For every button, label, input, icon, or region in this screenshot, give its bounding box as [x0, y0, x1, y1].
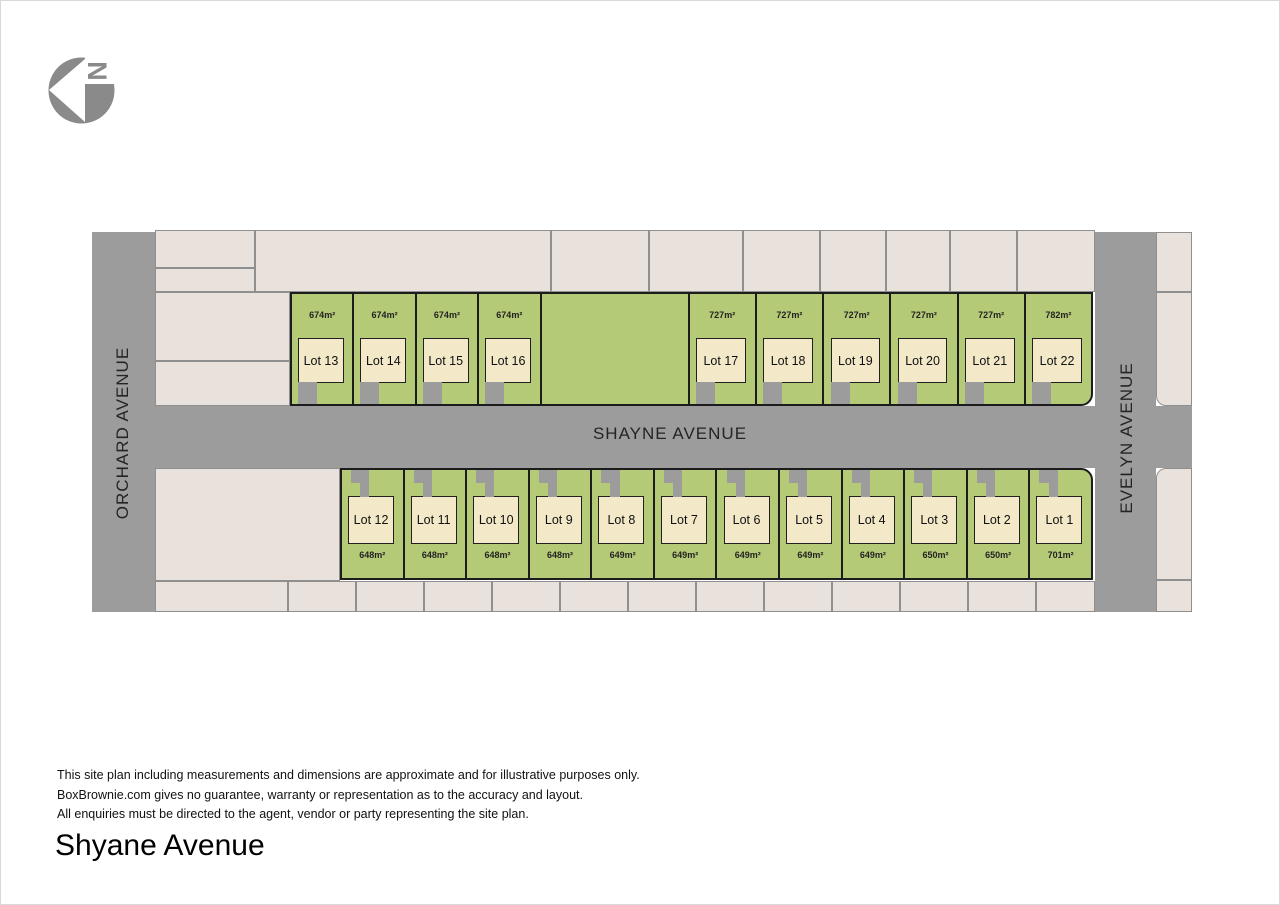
lot-number-label: Lot 17 — [703, 354, 738, 368]
lot-area-label: 727m² — [757, 310, 822, 320]
driveway — [798, 470, 807, 497]
lot-18: 727m²Lot 18 — [757, 294, 824, 404]
driveway — [923, 470, 932, 497]
driveway — [485, 382, 504, 404]
site-plan-canvas: N SHAYNE AVENUE ORCHARD AVENUE EVELYN AV… — [0, 0, 1280, 905]
page-title: Shyane Avenue — [55, 829, 265, 863]
background-parcel — [628, 581, 696, 612]
background-parcel — [950, 230, 1017, 292]
house-footprint: Lot 14 — [360, 338, 406, 383]
background-parcel — [1156, 580, 1192, 612]
driveway — [736, 470, 745, 497]
lot-10: 648m²Lot 10 — [467, 470, 530, 578]
house-footprint: Lot 7 — [661, 496, 707, 544]
lot-area-label: 727m² — [824, 310, 889, 320]
north-letter: N — [82, 61, 112, 81]
house-footprint: Lot 3 — [911, 496, 957, 544]
lot-area-label: 727m² — [690, 310, 755, 320]
driveway — [831, 382, 850, 404]
background-parcel — [1036, 581, 1095, 612]
driveway — [360, 470, 369, 497]
background-parcel — [832, 581, 900, 612]
lot-number-label: Lot 12 — [354, 513, 389, 527]
background-parcel — [155, 268, 255, 292]
house-footprint: Lot 11 — [411, 496, 457, 544]
driveway — [485, 470, 494, 497]
house-footprint: Lot 15 — [423, 338, 469, 383]
lot-6: 649m²Lot 6 — [717, 470, 780, 578]
lot-number-label: Lot 6 — [733, 513, 761, 527]
lot-3: 650m²Lot 3 — [905, 470, 968, 578]
lot-area-label: 648m² — [342, 550, 403, 560]
lot-number-label: Lot 13 — [304, 354, 339, 368]
open-space-area — [542, 294, 690, 404]
lot-22: 782m²Lot 22 — [1026, 294, 1091, 404]
background-parcel — [743, 230, 820, 292]
background-parcel — [492, 581, 560, 612]
background-parcel — [696, 581, 764, 612]
background-parcel — [155, 230, 255, 268]
disclaimer-text: This site plan including measurements an… — [57, 766, 640, 825]
lot-area-label: 649m² — [843, 550, 904, 560]
background-parcel — [649, 230, 743, 292]
driveway — [423, 470, 432, 497]
lot-number-label: Lot 11 — [417, 513, 451, 527]
lot-number-label: Lot 20 — [905, 354, 940, 368]
lot-4: 649m²Lot 4 — [843, 470, 906, 578]
house-footprint: Lot 16 — [485, 338, 531, 383]
lot-area-label: 674m² — [479, 310, 539, 320]
house-footprint: Lot 20 — [898, 338, 948, 383]
lot-1: 701m²Lot 1 — [1030, 470, 1091, 578]
house-footprint: Lot 19 — [831, 338, 881, 383]
lot-area-label: 674m² — [417, 310, 477, 320]
background-parcel — [1017, 230, 1095, 292]
background-parcel — [551, 230, 649, 292]
lot-number-label: Lot 9 — [545, 513, 573, 527]
lot-number-label: Lot 10 — [479, 513, 514, 527]
driveway — [965, 382, 984, 404]
lot-number-label: Lot 14 — [366, 354, 401, 368]
lot-14: 674m²Lot 14 — [354, 294, 416, 404]
driveway — [610, 470, 619, 497]
lot-area-label: 650m² — [905, 550, 966, 560]
lot-5: 649m²Lot 5 — [780, 470, 843, 578]
driveway — [1032, 382, 1051, 404]
lot-number-label: Lot 5 — [795, 513, 823, 527]
driveway — [423, 382, 442, 404]
lot-area-label: 674m² — [292, 310, 352, 320]
driveway — [986, 470, 995, 497]
background-parcel — [356, 581, 424, 612]
north-arrow-logo: N — [46, 56, 118, 126]
driveway — [673, 470, 682, 497]
background-parcel — [424, 581, 492, 612]
lot-12: 648m²Lot 12 — [342, 470, 405, 578]
background-parcel — [155, 361, 290, 406]
lot-7: 649m²Lot 7 — [655, 470, 718, 578]
lot-21: 727m²Lot 21 — [959, 294, 1026, 404]
lot-13: 674m²Lot 13 — [292, 294, 354, 404]
lot-11: 648m²Lot 11 — [405, 470, 468, 578]
house-footprint: Lot 13 — [298, 338, 344, 383]
house-footprint: Lot 5 — [786, 496, 832, 544]
background-parcel — [1156, 292, 1192, 406]
background-parcel — [155, 581, 288, 612]
background-parcel — [155, 468, 340, 581]
lot-9: 648m²Lot 9 — [530, 470, 593, 578]
lot-16: 674m²Lot 16 — [479, 294, 541, 404]
lot-number-label: Lot 22 — [1040, 354, 1075, 368]
driveway — [360, 382, 379, 404]
disclaimer-line: BoxBrownie.com gives no guarantee, warra… — [57, 786, 640, 806]
evelyn-avenue-label: EVELYN AVENUE — [1117, 288, 1137, 588]
lot-8: 649m²Lot 8 — [592, 470, 655, 578]
driveway — [696, 382, 715, 404]
lot-area-label: 649m² — [717, 550, 778, 560]
orchard-avenue-label: ORCHARD AVENUE — [113, 283, 133, 583]
lot-area-label: 727m² — [891, 310, 956, 320]
house-footprint: Lot 22 — [1032, 338, 1082, 383]
lot-number-label: Lot 3 — [920, 513, 948, 527]
lot-area-label: 650m² — [968, 550, 1029, 560]
house-footprint: Lot 4 — [849, 496, 895, 544]
lot-area-label: 674m² — [354, 310, 414, 320]
lot-number-label: Lot 16 — [491, 354, 526, 368]
lot-area-label: 782m² — [1026, 310, 1091, 320]
background-parcel — [255, 230, 551, 292]
lot-number-label: Lot 19 — [838, 354, 873, 368]
background-parcel — [1156, 468, 1192, 580]
driveway — [298, 382, 317, 404]
driveway — [763, 382, 782, 404]
lot-number-label: Lot 18 — [771, 354, 806, 368]
lot-number-label: Lot 21 — [972, 354, 1007, 368]
driveway — [1049, 470, 1058, 497]
driveway — [548, 470, 557, 497]
lot-area-label: 649m² — [655, 550, 716, 560]
lot-area-label: 648m² — [530, 550, 591, 560]
house-footprint: Lot 12 — [348, 496, 394, 544]
lot-15: 674m²Lot 15 — [417, 294, 479, 404]
lot-number-label: Lot 1 — [1046, 513, 1074, 527]
lot-area-label: 649m² — [592, 550, 653, 560]
background-parcel — [968, 581, 1036, 612]
background-parcel — [155, 292, 290, 361]
house-footprint: Lot 1 — [1036, 496, 1082, 544]
house-footprint: Lot 6 — [724, 496, 770, 544]
driveway — [898, 382, 917, 404]
house-footprint: Lot 9 — [536, 496, 582, 544]
lot-number-label: Lot 7 — [670, 513, 698, 527]
house-footprint: Lot 10 — [473, 496, 519, 544]
lot-number-label: Lot 15 — [428, 354, 463, 368]
lot-number-label: Lot 2 — [983, 513, 1011, 527]
lot-area-label: 649m² — [780, 550, 841, 560]
background-parcel — [886, 230, 950, 292]
lot-area-label: 701m² — [1030, 550, 1091, 560]
lot-number-label: Lot 4 — [858, 513, 886, 527]
lot-2: 650m²Lot 2 — [968, 470, 1031, 578]
top-lot-row: 674m²Lot 13674m²Lot 14674m²Lot 15674m²Lo… — [290, 292, 1093, 406]
shayne-avenue-label: SHAYNE AVENUE — [540, 424, 800, 444]
lot-20: 727m²Lot 20 — [891, 294, 958, 404]
house-footprint: Lot 2 — [974, 496, 1020, 544]
disclaimer-line: This site plan including measurements an… — [57, 766, 640, 786]
bottom-lot-row: 648m²Lot 12648m²Lot 11648m²Lot 10648m²Lo… — [340, 468, 1093, 580]
lot-area-label: 648m² — [405, 550, 466, 560]
lot-19: 727m²Lot 19 — [824, 294, 891, 404]
lot-area-label: 727m² — [959, 310, 1024, 320]
background-parcel — [820, 230, 886, 292]
background-parcel — [900, 581, 968, 612]
house-footprint: Lot 17 — [696, 338, 746, 383]
background-parcel — [288, 581, 356, 612]
lot-area-label: 648m² — [467, 550, 528, 560]
driveway — [861, 470, 870, 497]
background-parcel — [764, 581, 832, 612]
lot-17: 727m²Lot 17 — [690, 294, 757, 404]
background-parcel — [1156, 232, 1192, 292]
house-footprint: Lot 18 — [763, 338, 813, 383]
lot-number-label: Lot 8 — [607, 513, 635, 527]
house-footprint: Lot 8 — [598, 496, 644, 544]
house-footprint: Lot 21 — [965, 338, 1015, 383]
background-parcel — [560, 581, 628, 612]
disclaimer-line: All enquiries must be directed to the ag… — [57, 805, 640, 825]
